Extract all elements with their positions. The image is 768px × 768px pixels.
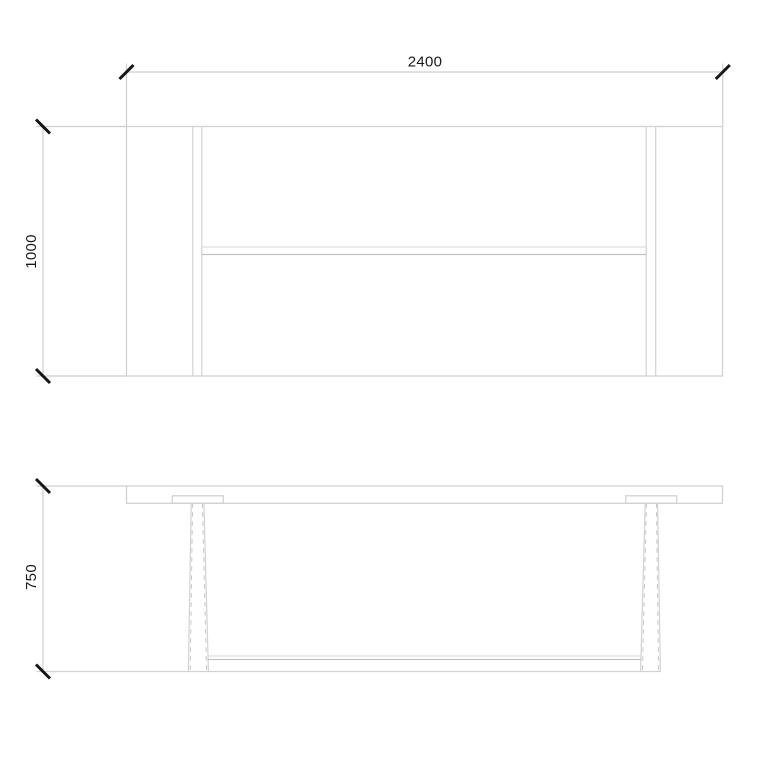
elevation-right-leg-mounting-plate [626, 496, 677, 504]
dimension-width: 2400 [120, 54, 730, 127]
plan-view [127, 127, 723, 377]
dimension-depth: 1000 [23, 120, 127, 384]
elevation-tabletop-slab [127, 486, 723, 503]
table-technical-drawing: 2400 1000 [0, 0, 768, 768]
width-dimension-label: 2400 [408, 54, 443, 71]
elevation-left-leg-mounting-plate [172, 496, 223, 504]
elevation-right-leg-edge-outer [658, 503, 661, 671]
dimension-height: 750 [23, 479, 127, 679]
plan-tabletop-outline [127, 127, 723, 377]
height-dimension-label: 750 [23, 564, 40, 590]
elevation-left-leg-edge-outer [188, 503, 191, 671]
depth-dimension-label: 1000 [23, 234, 40, 269]
drawing-sheet: 2400 1000 [0, 0, 768, 768]
elevation-view [37, 486, 723, 672]
